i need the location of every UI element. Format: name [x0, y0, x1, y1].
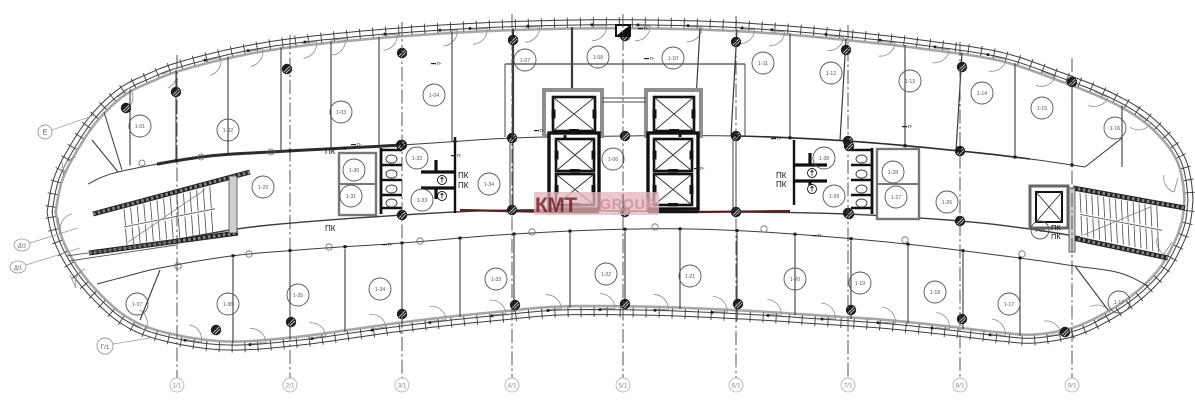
svg-text:1-01: 1-01: [135, 124, 145, 130]
svg-text:1-33: 1-33: [491, 277, 501, 283]
svg-text:1-21: 1-21: [685, 274, 695, 280]
svg-text:1-16: 1-16: [1110, 126, 1120, 132]
svg-text:1-03: 1-03: [336, 110, 346, 116]
svg-text:1-39: 1-39: [829, 194, 839, 200]
svg-text:п-: п-: [540, 128, 545, 134]
svg-text:1-22: 1-22: [601, 272, 611, 278]
svg-text:1-38: 1-38: [819, 156, 829, 162]
svg-text:п-: п-: [357, 142, 362, 148]
svg-text:п-: п-: [437, 61, 442, 67]
svg-text:1-37: 1-37: [132, 302, 142, 308]
svg-text:1-28: 1-28: [888, 170, 898, 176]
svg-text:1-17: 1-17: [1114, 300, 1124, 306]
svg-text:5/1: 5/1: [618, 383, 627, 390]
svg-text:1-34: 1-34: [375, 287, 385, 293]
svg-text:1-32: 1-32: [412, 156, 422, 162]
svg-text:Е: Е: [43, 130, 48, 137]
svg-text:1-15: 1-15: [1037, 106, 1047, 112]
svg-text:ПК: ПК: [325, 224, 336, 233]
svg-text:1-13: 1-13: [905, 79, 915, 85]
svg-text:1-17: 1-17: [1004, 302, 1014, 308]
svg-text:п-: п-: [777, 136, 782, 142]
svg-text:1-18: 1-18: [930, 290, 940, 296]
svg-text:КМТ: КМТ: [535, 194, 577, 217]
svg-text:п-: п-: [908, 124, 913, 130]
svg-text:ПК: ПК: [458, 171, 469, 180]
svg-text:1-23: 1-23: [258, 185, 268, 191]
svg-text:ПК: ПК: [776, 180, 787, 189]
svg-text:GROUP: GROUP: [600, 197, 656, 213]
svg-text:1/1: 1/1: [172, 383, 181, 390]
svg-text:п-: п-: [388, 242, 393, 248]
svg-text:1-30: 1-30: [349, 168, 359, 174]
svg-text:4/1: 4/1: [507, 383, 516, 390]
svg-text:1-12: 1-12: [826, 71, 836, 77]
svg-text:ПК: ПК: [1051, 223, 1061, 232]
svg-text:1-35: 1-35: [293, 293, 303, 299]
svg-text:1-11: 1-11: [758, 61, 768, 67]
svg-text:2/1: 2/1: [285, 383, 294, 390]
svg-text:6/1: 6/1: [731, 383, 740, 390]
svg-text:п-: п-: [700, 166, 705, 172]
svg-text:Д/2: Д/2: [18, 244, 26, 250]
svg-text:8/1: 8/1: [955, 383, 964, 390]
svg-text:1-06: 1-06: [608, 157, 618, 163]
svg-text:1-14: 1-14: [977, 91, 987, 97]
svg-text:ПК: ПК: [458, 181, 469, 190]
svg-text:1-36: 1-36: [223, 302, 233, 308]
svg-text:1-27: 1-27: [891, 195, 901, 201]
svg-text:п-: п-: [644, 26, 649, 32]
svg-text:1-19: 1-19: [855, 281, 865, 287]
svg-text:7/1: 7/1: [843, 383, 852, 390]
svg-text:1-10: 1-10: [668, 56, 678, 62]
svg-text:п-: п-: [818, 233, 823, 239]
svg-text:Д/1: Д/1: [14, 266, 22, 272]
svg-text:1-31: 1-31: [346, 194, 356, 200]
svg-text:1-02: 1-02: [223, 128, 233, 134]
svg-text:1-07: 1-07: [520, 58, 530, 64]
svg-text:1-20: 1-20: [790, 277, 800, 283]
svg-text:1-26: 1-26: [942, 200, 952, 206]
svg-text:Г/1: Г/1: [101, 344, 110, 351]
svg-text:1-08: 1-08: [593, 55, 603, 61]
svg-text:3/1: 3/1: [397, 383, 406, 390]
svg-text:п-: п-: [457, 153, 462, 159]
svg-text:ПК: ПК: [325, 147, 336, 156]
svg-text:1-04: 1-04: [429, 93, 439, 99]
svg-text:ПК: ПК: [1051, 232, 1061, 241]
svg-text:9/1: 9/1: [1067, 383, 1076, 390]
svg-text:1-34: 1-34: [484, 182, 494, 188]
svg-text:п-: п-: [650, 56, 655, 62]
svg-text:ПК: ПК: [776, 171, 787, 180]
svg-text:1-33: 1-33: [417, 198, 427, 204]
svg-text:1-25: 1-25: [1035, 228, 1045, 234]
